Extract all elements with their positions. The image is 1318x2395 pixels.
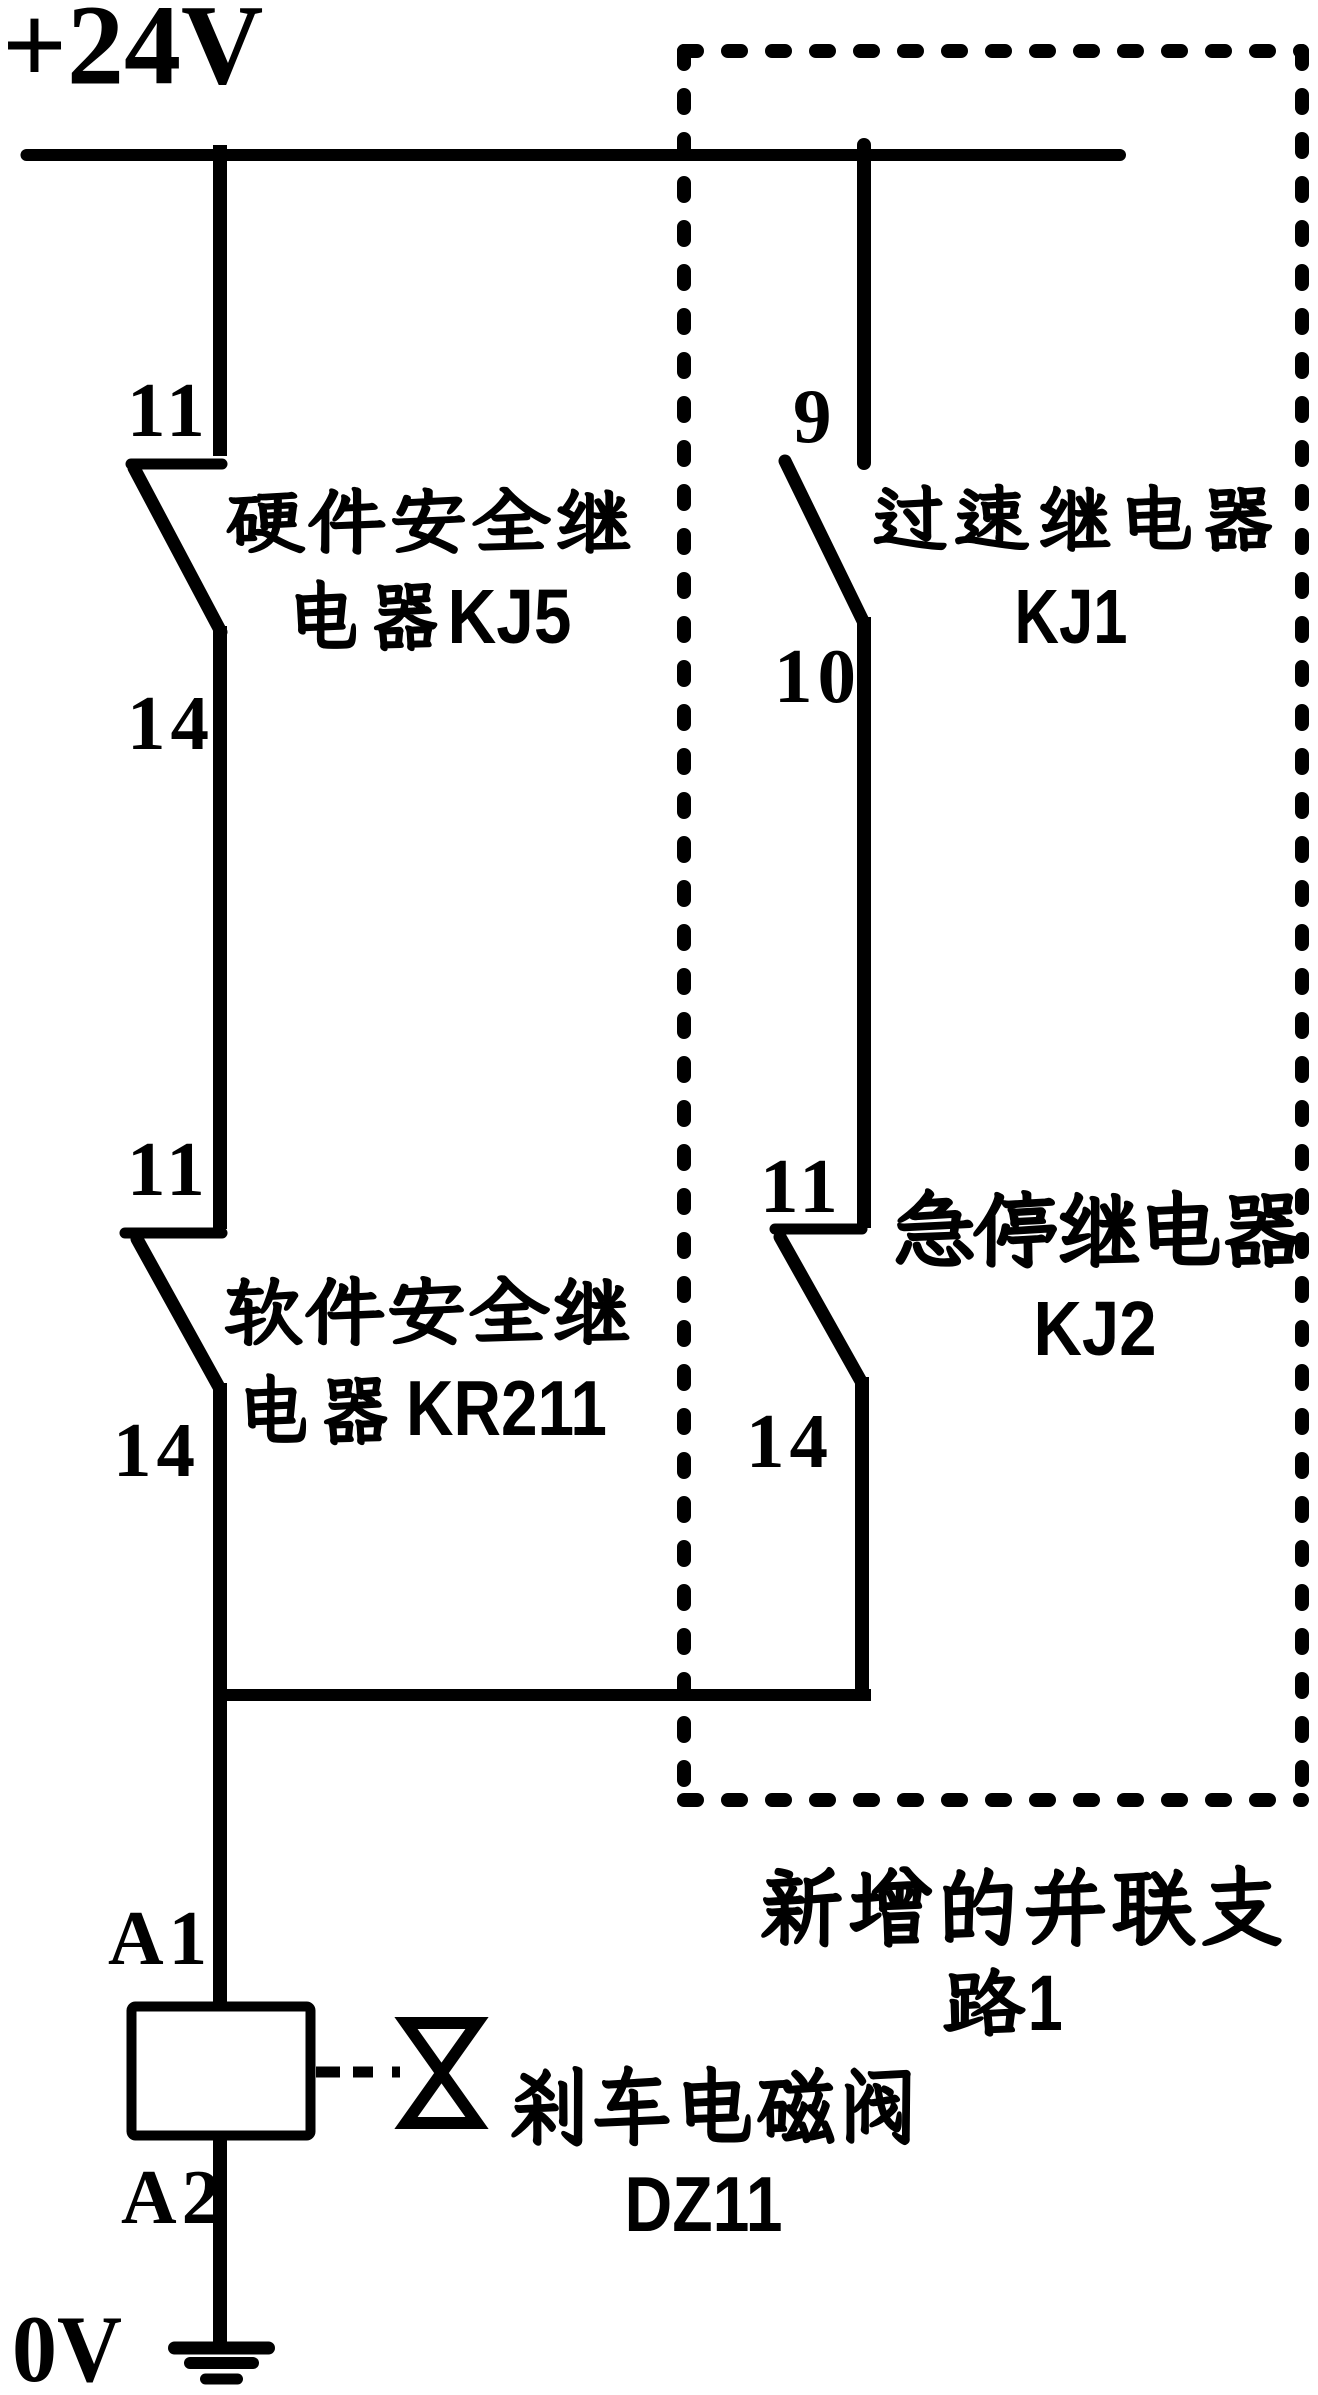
svg-text:A2: A2	[121, 2154, 225, 2240]
svg-text:KJ5: KJ5	[448, 574, 572, 660]
svg-text:KJ2: KJ2	[1034, 1286, 1157, 1372]
svg-text:+24V: +24V	[2, 0, 263, 109]
svg-text:11: 11	[127, 1126, 210, 1212]
svg-text:KR211: KR211	[406, 1364, 607, 1452]
svg-text:11: 11	[760, 1143, 843, 1229]
svg-text:0V: 0V	[12, 2296, 122, 2395]
svg-text:11: 11	[127, 367, 210, 453]
svg-text:14: 14	[127, 680, 214, 766]
svg-text:14: 14	[746, 1398, 833, 1484]
svg-text:9: 9	[793, 373, 832, 459]
svg-text:A1: A1	[108, 1895, 212, 1981]
svg-text:DZ11: DZ11	[625, 2160, 783, 2248]
svg-text:14: 14	[113, 1407, 200, 1493]
svg-text:10: 10	[774, 633, 861, 719]
svg-text:KJ1: KJ1	[1015, 574, 1128, 660]
svg-text:1: 1	[1028, 1958, 1063, 2047]
